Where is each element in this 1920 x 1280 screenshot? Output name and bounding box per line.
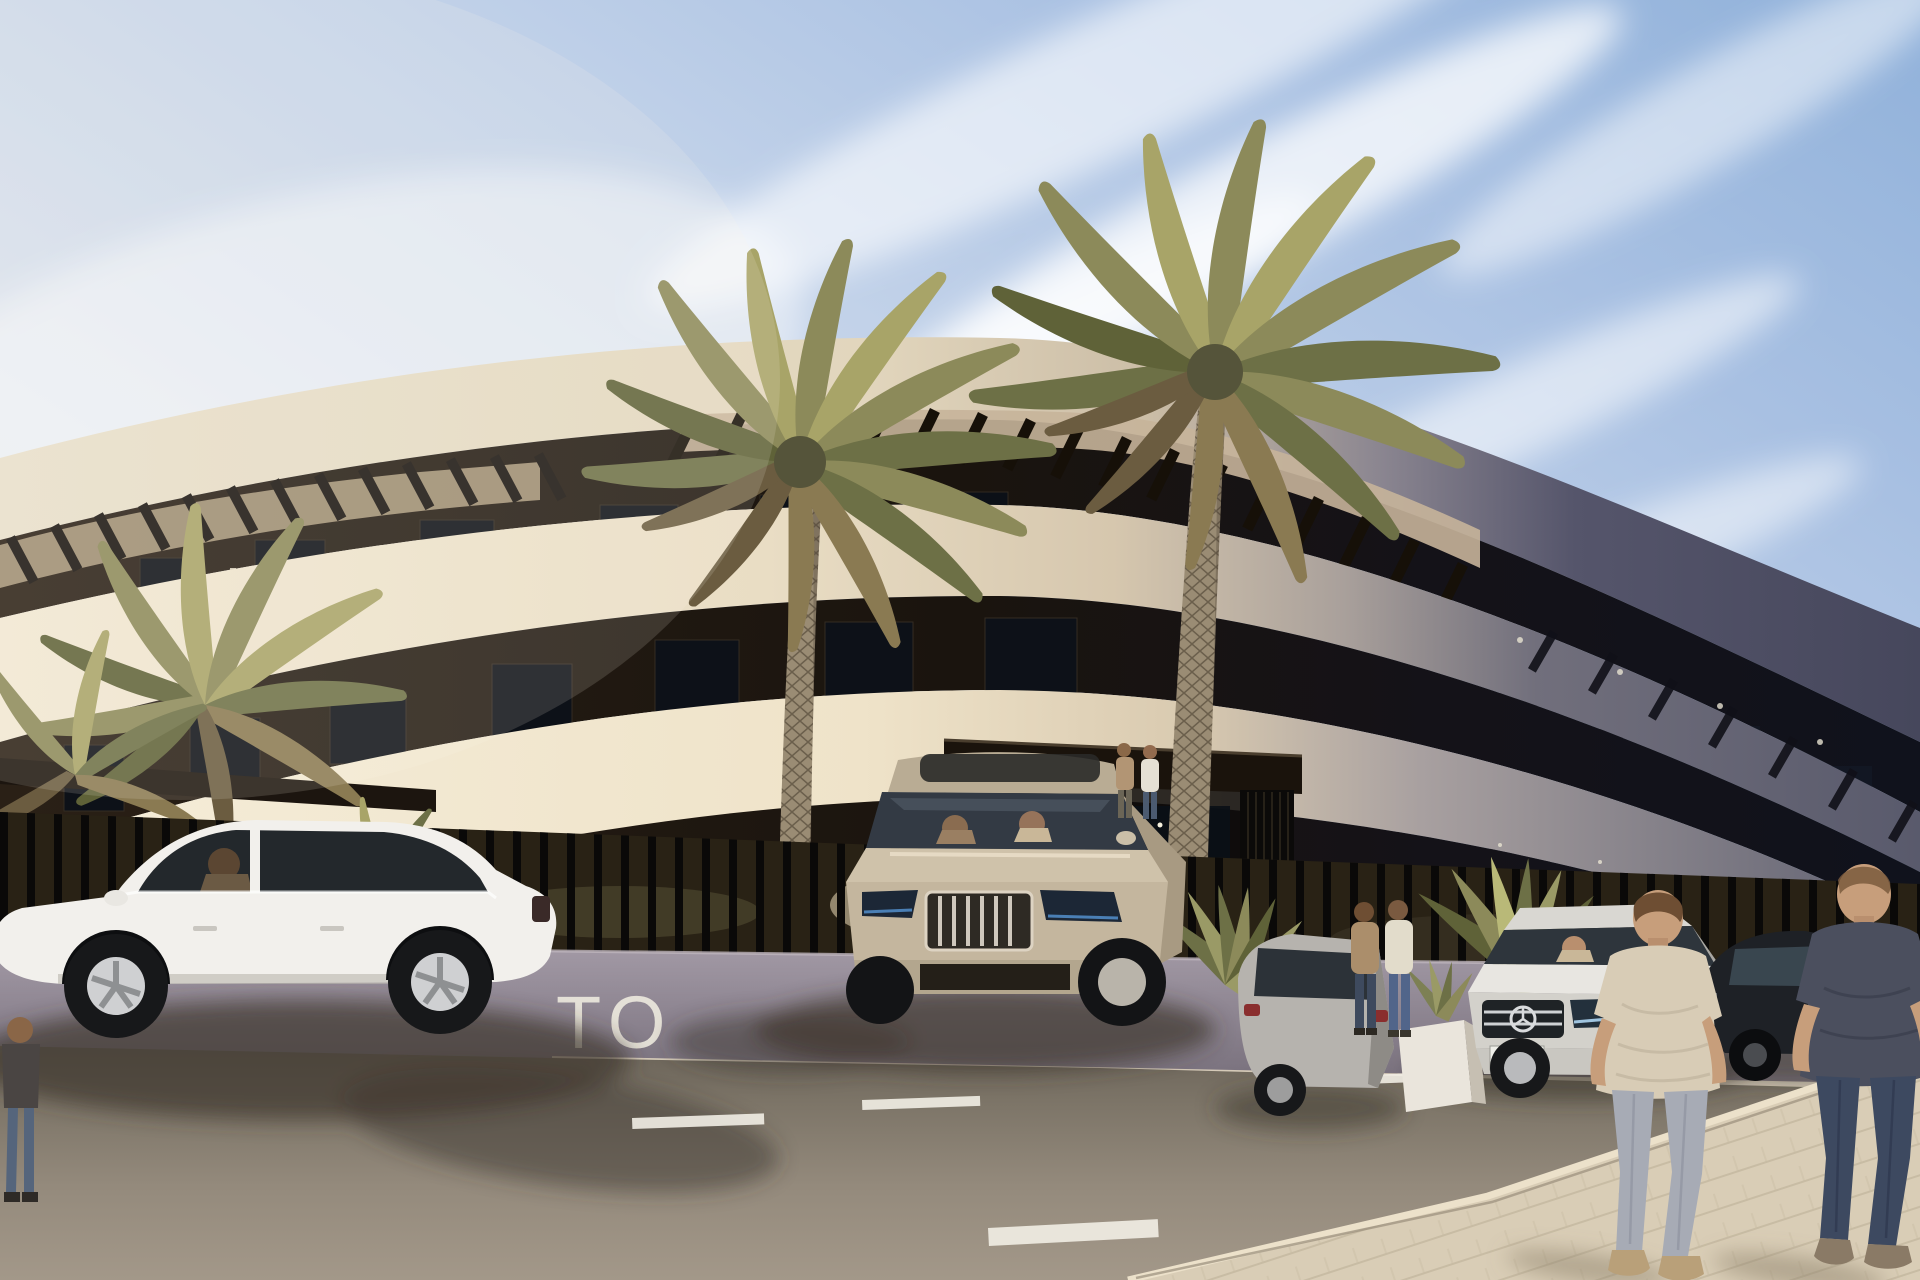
tshirt <box>1796 922 1920 1086</box>
tail-light <box>1244 1004 1260 1016</box>
b-pillar <box>250 828 260 894</box>
shoe <box>1658 1256 1704 1280</box>
shoe <box>1864 1244 1912 1269</box>
air-intake <box>920 964 1070 990</box>
headlight-left <box>862 890 918 918</box>
architectural-render-scene: TO <box>0 0 1920 1280</box>
door-handle <box>193 926 217 931</box>
side-mirror <box>1116 831 1136 845</box>
side-mirror <box>104 890 128 906</box>
render-canvas: TO <box>0 0 1920 1280</box>
door-handle <box>320 926 344 931</box>
canopy-downlight <box>1158 823 1163 828</box>
driver-torso <box>200 874 252 892</box>
shoe <box>1608 1250 1650 1276</box>
shoe <box>1814 1238 1854 1265</box>
panoramic-roof <box>920 754 1100 782</box>
tail-light <box>532 896 550 922</box>
wheel <box>846 956 914 1024</box>
